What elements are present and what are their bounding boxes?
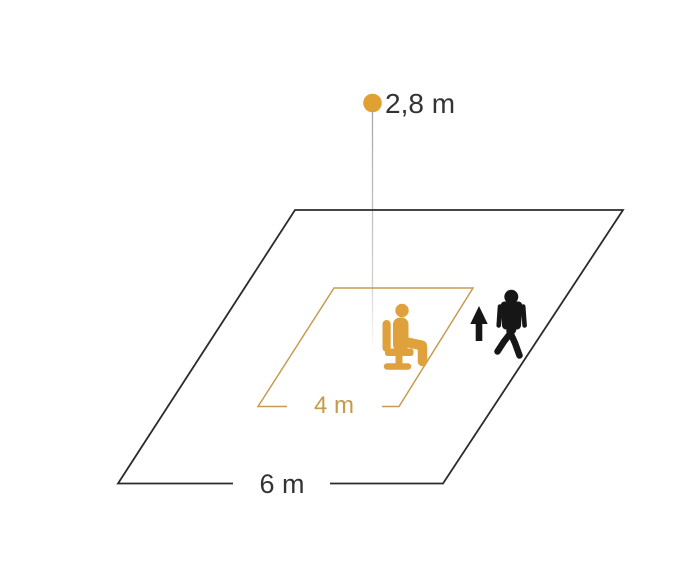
sensor-dot xyxy=(363,94,382,113)
diagram-canvas: 2,8 m 4 m 6 m xyxy=(0,0,697,584)
mounting-height-label: 2,8 m xyxy=(385,88,455,119)
up-arrow-icon xyxy=(470,306,487,341)
sensor-coverage-diagram: 2,8 m 4 m 6 m xyxy=(0,0,697,584)
walking-range-label: 6 m xyxy=(259,469,304,499)
outer-detection-area xyxy=(118,210,623,484)
inner-detection-area xyxy=(258,288,473,407)
walking-person-icon xyxy=(498,290,525,356)
seated-person-icon xyxy=(383,304,423,367)
seated-range-label: 4 m xyxy=(314,392,354,419)
